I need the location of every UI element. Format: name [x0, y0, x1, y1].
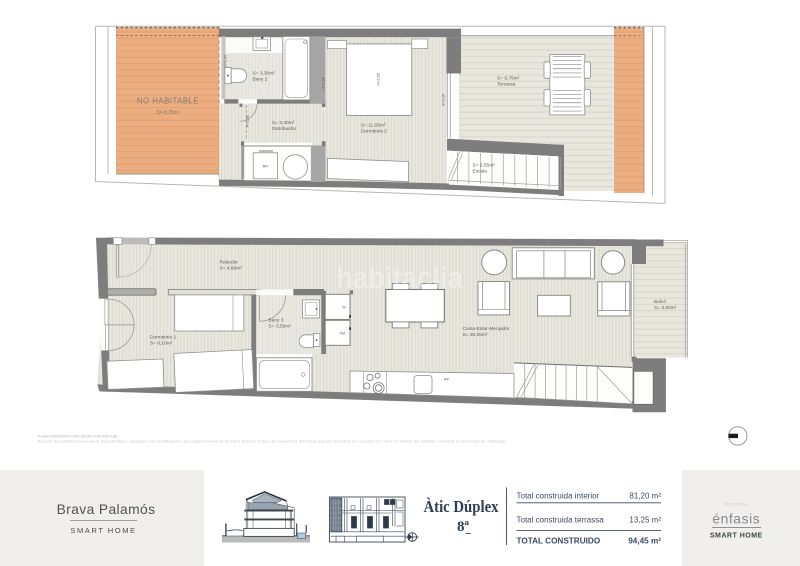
svg-text:Distribuidor: Distribuidor — [272, 126, 297, 132]
svg-text:8ª: 8ª — [457, 519, 470, 535]
svg-text:RP: RP — [444, 378, 450, 382]
svg-text:S= 8,10m²: S= 8,10m² — [150, 341, 173, 347]
svg-text:S= 2,55m²: S= 2,55m² — [473, 163, 496, 169]
svg-text:S= 3,50m²: S= 3,50m² — [654, 305, 677, 311]
svg-text:13,25 m²: 13,25 m² — [629, 515, 661, 524]
svg-text:S= 8,25m²: S= 8,25m² — [156, 110, 180, 116]
svg-text:Balcó: Balcó — [654, 299, 666, 305]
svg-text:TOTAL CONSTRUIDO: TOTAL CONSTRUIDO — [517, 536, 601, 545]
svg-text:Dormitorio 2: Dormitorio 2 — [150, 335, 176, 341]
svg-text:H=1,50: H=1,50 — [223, 54, 228, 67]
svg-text:Bany 3: Bany 3 — [269, 318, 284, 324]
svg-text:habitaclia: habitaclia — [336, 260, 464, 295]
svg-text:FM: FM — [340, 332, 345, 336]
svg-text:SMART HOME: SMART HOME — [70, 526, 136, 535]
svg-text:Escala: Escala — [473, 169, 488, 175]
svg-text:H=1,66: H=1,66 — [245, 115, 250, 128]
svg-text:S= 4,60m²: S= 4,60m² — [220, 266, 243, 272]
svg-text:H=2,65: H=2,65 — [376, 73, 381, 86]
svg-text:Terrassa: Terrassa — [497, 82, 516, 88]
svg-text:94,45 m²: 94,45 m² — [628, 536, 661, 545]
svg-text:Bany 2: Bany 2 — [253, 77, 268, 83]
svg-text:S= 3,30m²: S= 3,30m² — [253, 71, 276, 77]
svg-text:RR: RR — [263, 164, 269, 168]
svg-text:81,20 m²: 81,20 m² — [629, 491, 661, 500]
svg-text:énfasis: énfasis — [712, 512, 760, 527]
svg-text:SMART HOME: SMART HOME — [710, 532, 763, 539]
svg-text:S= 9,75m²: S= 9,75m² — [497, 76, 520, 82]
svg-text:S= 3,55m²: S= 3,55m² — [269, 324, 292, 330]
svg-text:Total construida terrassa: Total construida terrassa — [517, 515, 605, 524]
svg-text:H=2,26: H=2,26 — [321, 77, 326, 90]
svg-text:NO HABITABLE: NO HABITABLE — [137, 97, 199, 106]
svg-text:S= 30,05m²: S= 30,05m² — [463, 332, 488, 338]
svg-text:S= 3,30m²: S= 3,30m² — [272, 120, 295, 126]
svg-text:Aquesta documentació expressa: Aquesta documentació expressa el project… — [38, 440, 505, 444]
svg-text:Brava Palamós: Brava Palamós — [57, 502, 156, 517]
svg-text:Àtic Dúplex: Àtic Dúplex — [424, 497, 499, 516]
svg-text:Total construida interior: Total construida interior — [517, 491, 600, 500]
svg-text:Promou: Promou — [724, 502, 748, 508]
svg-text:Dormitoris 2: Dormitoris 2 — [361, 129, 387, 135]
svg-text:Rebedor: Rebedor — [220, 260, 239, 266]
svg-text:H=2,26: H=2,26 — [441, 94, 446, 107]
svg-text:S= 11,05m²: S= 11,05m² — [361, 123, 386, 129]
svg-text:PLANO ORIENTATIVO SIN VALOR CO: PLANO ORIENTATIVO SIN VALOR CONTRACTUAL. — [38, 435, 119, 439]
svg-text:Cuina-Estar-Menjador: Cuina-Estar-Menjador — [463, 326, 510, 332]
